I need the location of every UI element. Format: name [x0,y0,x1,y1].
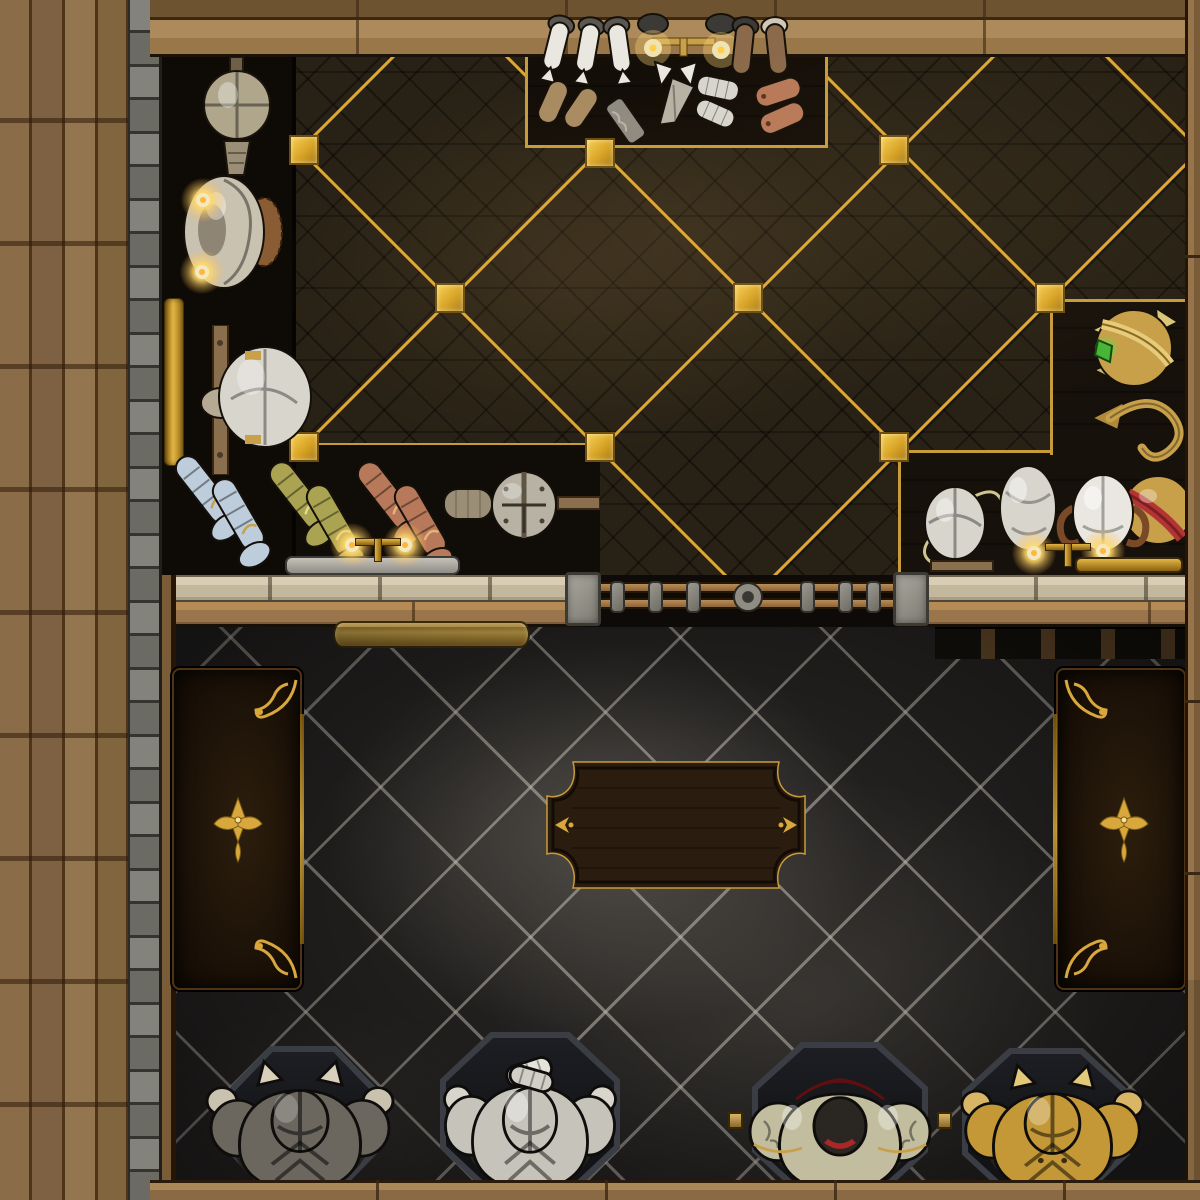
segmented-bracers[interactable] [693,74,741,130]
steel-boot-cuff[interactable] [706,14,736,34]
candle-flame-icon [200,197,206,203]
battlemap-armory [0,0,1200,1200]
display-cabinet-left[interactable] [172,668,302,990]
helmet-highlight [274,1094,298,1123]
railing-baluster [648,581,663,613]
helm-on-wall-stand[interactable] [192,57,282,177]
helmet-highlight [1027,1097,1050,1125]
cabinet-gold-edge [300,714,304,944]
candle-flame-icon [718,47,725,54]
gladiator-helm[interactable] [440,455,600,560]
corner-filigree-icon [1062,934,1110,982]
stand-stem [375,539,381,561]
gold-wall-trim [164,298,184,466]
railing-baluster [610,581,625,613]
brass-wall-shelf[interactable] [333,621,530,648]
leather-boots[interactable] [728,16,793,75]
gold-node [435,283,465,313]
corner-filigree-icon [252,676,300,724]
cabinet-gold-edge [1053,714,1057,944]
gold-candle-stand[interactable] [356,536,400,562]
helm-highlight [1009,477,1027,503]
counter-wood-right [898,602,1185,627]
gold-node [879,432,909,462]
wall-seam [1185,872,1200,875]
silver-sabatons[interactable] [535,13,638,86]
armor-stand-red-plume[interactable] [740,1058,940,1193]
candle-flame-icon [349,542,355,548]
helm-highlight [502,483,522,499]
gold-grappling-hook[interactable] [1080,388,1190,473]
stone-post [893,572,929,626]
bottom-wall-wood [150,1180,1200,1200]
gold-tab [245,351,261,360]
copper-bracers[interactable] [753,75,807,137]
corner-filigree-icon [252,934,300,982]
horn [1070,1066,1093,1089]
gold-helm-green-gem[interactable] [1072,300,1184,395]
pauldron-highlight [878,1105,898,1130]
stone-counter-left[interactable] [162,575,567,602]
helm-highlight [1084,486,1102,510]
display-case-items[interactable] [525,10,828,150]
helm-highlight [936,498,954,522]
gold-emblem-icon [208,796,268,866]
stand-stem [1065,544,1071,566]
stone-counter-right[interactable] [928,575,1185,602]
gold-node [289,135,319,165]
candle-flame-icon [1031,550,1037,556]
horn [318,1062,342,1085]
candle-flame-icon [402,542,408,548]
gold-node [733,283,763,313]
candle-flame-icon [199,269,205,275]
horn [258,1062,282,1085]
right-wall-wood [1185,0,1200,1200]
slatted-shelf [935,627,1185,659]
horn [1012,1066,1035,1089]
display-cabinet-right[interactable] [1056,668,1186,990]
rack-nail [217,340,223,346]
railing-baluster [686,581,701,613]
candle-flame-icon [650,45,657,52]
stone-post [565,572,601,626]
pauldron-highlight [782,1105,802,1130]
mount-plank [558,497,600,509]
armor-stand-silver[interactable] [435,1050,625,1192]
wood-tray[interactable] [930,560,994,572]
case-candles[interactable] [635,30,739,68]
armor-stand-gold[interactable] [955,1062,1150,1194]
gold-node [879,135,909,165]
railing-medallion [733,582,763,612]
helmet-highlight [505,1092,528,1122]
helm-highlight [218,82,238,108]
candle-flame-icon [1100,548,1106,554]
gold-node [1035,283,1065,313]
candle[interactable] [181,178,225,222]
gold-emblem-icon [1094,796,1154,866]
engraved-bracer[interactable] [604,96,647,145]
showroom-table[interactable] [537,752,815,898]
candle[interactable] [180,250,224,294]
railing-baluster [866,581,881,613]
railing-baluster [838,581,853,613]
wall-seam [1185,700,1200,703]
table-top [547,762,805,888]
gold-tray[interactable] [1075,557,1183,573]
wall-seam [1185,255,1200,258]
leather-gloves[interactable] [535,78,602,132]
helm-highlight [237,359,265,395]
armor-stand-dark-steel[interactable] [200,1058,400,1193]
gold-candle-stem [680,38,687,56]
corner-filigree-icon [1062,676,1110,724]
railing-baluster [800,581,815,613]
